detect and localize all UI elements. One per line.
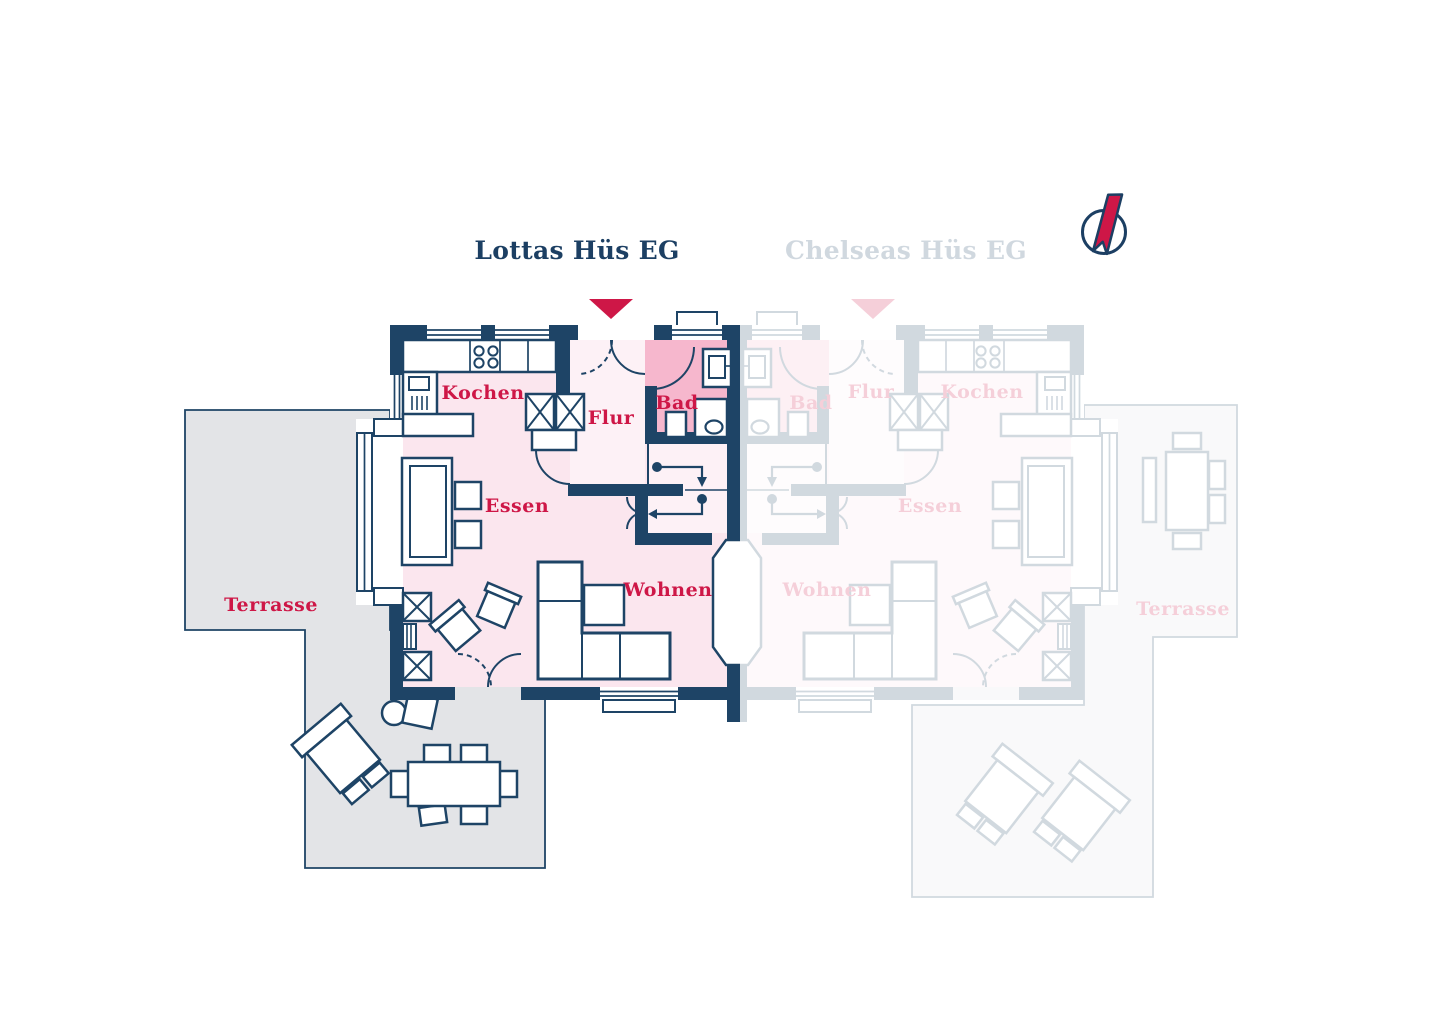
room-label-flur: Flur (848, 381, 895, 403)
room-label-bad: Bad (789, 392, 832, 414)
plan-title-chelseas[interactable]: Chelseas Hüs EG (785, 236, 1027, 265)
room-label-kochen: Kochen (441, 382, 524, 404)
terrace-table (408, 762, 500, 806)
room-label-essen: Essen (898, 495, 962, 517)
compass-icon (1083, 190, 1128, 256)
plan-lottas: Lottas Hüs EG (185, 236, 740, 868)
floorplan-canvas: Lottas Hüs EG (0, 0, 1440, 1018)
room-label-bad: Bad (655, 392, 698, 414)
plan-chelseas: Chelseas Hüs EG (734, 236, 1237, 897)
terrace-table (1166, 452, 1208, 530)
room-label-terrasse: Terrasse (224, 594, 318, 616)
entrance-marker-icon (589, 299, 633, 319)
room-label-wohnen: Wohnen (623, 579, 713, 601)
room-label-terrasse: Terrasse (1136, 598, 1230, 620)
room-label-essen: Essen (485, 495, 549, 517)
room-label-flur: Flur (588, 407, 635, 429)
entrance-marker-icon (851, 299, 895, 319)
room-label-kochen: Kochen (940, 381, 1023, 403)
room-label-wohnen: Wohnen (782, 579, 872, 601)
plan-title-lottas[interactable]: Lottas Hüs EG (474, 236, 679, 265)
